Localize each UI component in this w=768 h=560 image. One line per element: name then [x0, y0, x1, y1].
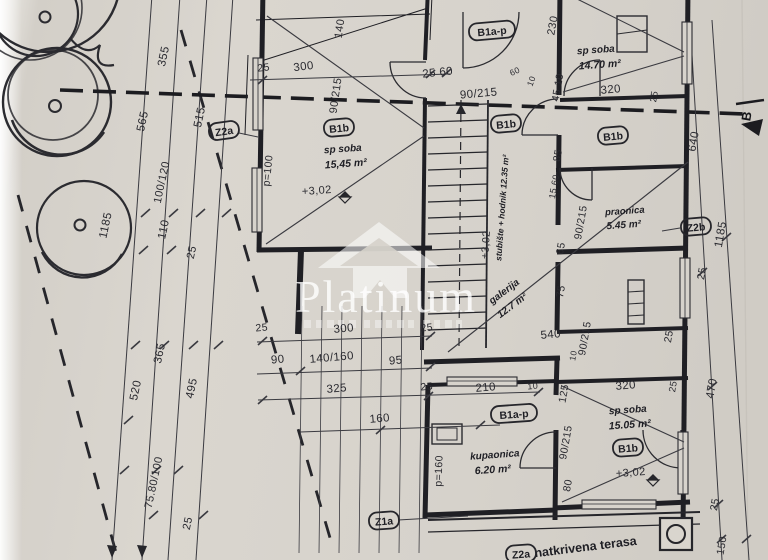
- dim-25-bl-c: 25: [420, 380, 433, 393]
- terrace-column: [660, 518, 692, 550]
- dim-320-b: 320: [615, 379, 636, 393]
- svg-text:B1b: B1b: [618, 442, 639, 455]
- svg-text:B1a-p: B1a-p: [499, 408, 529, 422]
- level-spsoba3: +3,02: [615, 466, 646, 480]
- dim-210: 210: [475, 381, 496, 395]
- floor-plan-drawing: Platinum 355565515100/120110251185365520…: [0, 0, 768, 560]
- svg-text:B1b: B1b: [496, 118, 517, 132]
- dim-10-small-c: 10: [527, 381, 539, 392]
- watermark-brand: Platinum: [295, 271, 477, 322]
- dim-25-br-b: 25: [662, 329, 676, 343]
- dim-160-b: 160: [369, 412, 390, 426]
- dim-p160: p=160: [432, 455, 445, 487]
- svg-text:B1b: B1b: [329, 122, 350, 136]
- room-kupaonica-area: 6.20 m²: [474, 463, 511, 478]
- svg-text:Z2a: Z2a: [512, 548, 531, 560]
- svg-text:B1b: B1b: [603, 130, 624, 144]
- wall-kupaonica-left: [425, 385, 428, 518]
- dim-25-right-a: 25: [695, 266, 709, 280]
- dim-75: 75: [554, 284, 568, 298]
- dim-90-b: 90: [270, 353, 285, 366]
- dim-25-bl-b: 25: [420, 321, 433, 334]
- dim-325: 325: [326, 382, 347, 396]
- dim-25-br-c: 25: [708, 497, 722, 511]
- dim-25-bl-a: 25: [255, 321, 268, 334]
- window-spsoba3: [582, 500, 656, 509]
- level-stair: +3,02: [479, 230, 493, 259]
- svg-text:B1a-p: B1a-p: [477, 25, 507, 39]
- dim-540: 540: [540, 328, 561, 342]
- dim-320-top: 320: [600, 83, 621, 97]
- dim-25-tr: 25: [648, 90, 661, 103]
- dim-95: 95: [388, 354, 403, 367]
- svg-text:Z1a: Z1a: [375, 515, 394, 528]
- dim-300-b: 300: [333, 322, 354, 336]
- dim-300-top: 300: [293, 60, 315, 74]
- level-left-room: +3,02: [301, 184, 332, 198]
- dim-80: 80: [561, 478, 575, 492]
- dim-10-small-b: 10: [567, 350, 579, 362]
- dim-85: 85: [551, 148, 565, 162]
- scanned-floor-plan-page: Platinum 355565515100/120110251185365520…: [0, 0, 768, 560]
- svg-text:Z2a: Z2a: [214, 125, 234, 139]
- dim-25-top: 25: [257, 61, 271, 74]
- paper-left-edge: [0, 0, 22, 560]
- dim-65: 65: [554, 241, 568, 255]
- svg-text:Z2b: Z2b: [686, 221, 706, 235]
- dim-25-br-a: 25: [667, 380, 680, 393]
